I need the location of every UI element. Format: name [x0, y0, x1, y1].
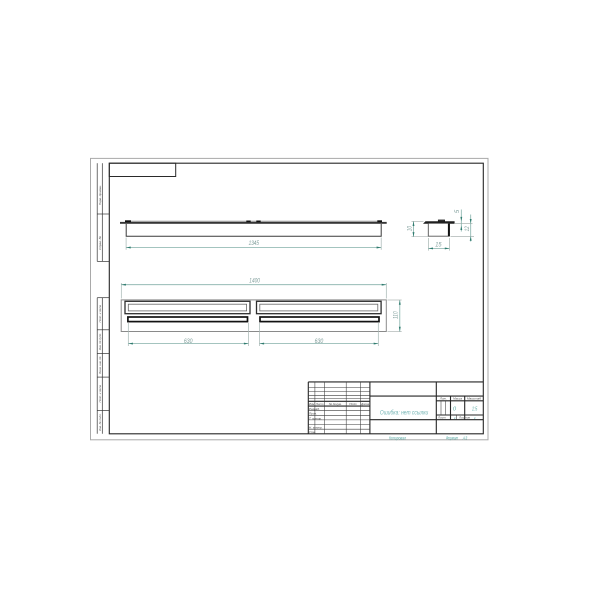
svg-text:110: 110 — [394, 311, 400, 319]
svg-text:Листов: Листов — [458, 416, 470, 420]
svg-text:Лит.: Лит. — [439, 396, 447, 400]
svg-text:Подп. и дата: Подп. и дата — [98, 305, 102, 323]
svg-text:12: 12 — [465, 226, 471, 231]
svg-text:630: 630 — [184, 338, 193, 345]
svg-text:Ошибка: нет ссылки: Ошибка: нет ссылки — [380, 409, 429, 417]
svg-text:Разраб.: Разраб. — [309, 407, 320, 411]
svg-text:Формат: Формат — [446, 435, 459, 440]
svg-text:630: 630 — [315, 338, 324, 345]
svg-text:1400: 1400 — [249, 278, 260, 285]
svg-text:Взам. инв. №: Взам. инв. № — [98, 357, 102, 374]
svg-text:Утв.: Утв. — [309, 430, 316, 434]
svg-text:Масса: Масса — [453, 396, 462, 400]
svg-text:Лист: Лист — [437, 416, 446, 420]
svg-text:Подп.: Подп. — [349, 402, 357, 406]
svg-text:Т. контр.: Т. контр. — [309, 416, 322, 420]
svg-text:Копировал: Копировал — [389, 435, 406, 440]
svg-text:№ докум.: № докум. — [329, 402, 342, 406]
svg-text:Дата: Дата — [360, 402, 369, 406]
svg-text:1345: 1345 — [249, 240, 260, 247]
svg-text:15: 15 — [435, 242, 442, 248]
svg-text:Подп. и дата: Подп. и дата — [98, 385, 102, 403]
svg-text:Инв. № дубл.: Инв. № дубл. — [98, 333, 102, 350]
svg-text:Справ. №: Справ. № — [98, 235, 102, 249]
svg-text:Н. контр.: Н. контр. — [309, 426, 323, 430]
svg-text:Перв. примен.: Перв. примен. — [98, 185, 102, 205]
svg-text:10: 10 — [407, 225, 413, 231]
svg-text:А3: А3 — [462, 435, 468, 440]
svg-text:Изм: Изм — [309, 402, 315, 406]
svg-text:Масштаб: Масштаб — [467, 396, 481, 400]
svg-text:Пров.: Пров. — [309, 412, 317, 416]
svg-text:Инв. № подл.: Инв. № подл. — [98, 413, 102, 431]
svg-text:1:5: 1:5 — [472, 407, 478, 413]
svg-text:Лист: Лист — [315, 402, 324, 406]
